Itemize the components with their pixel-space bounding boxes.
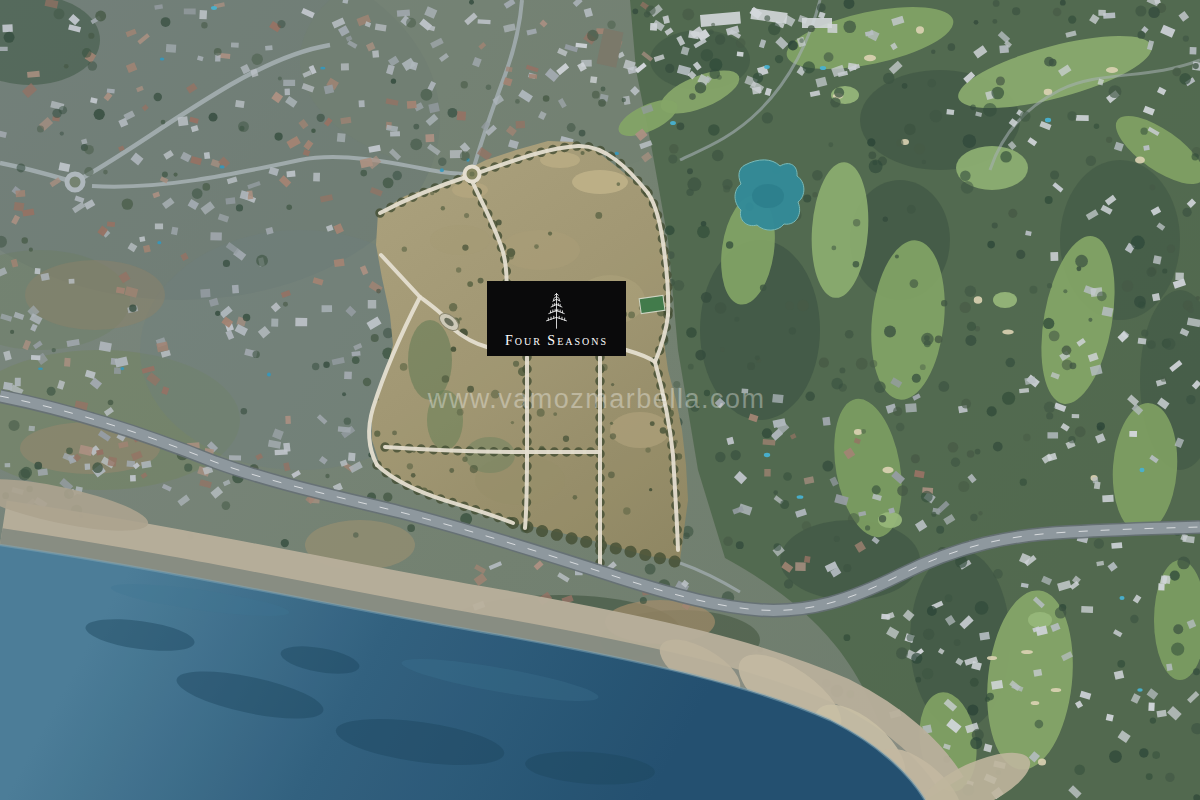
- four-seasons-brand-label: Four Seasons: [505, 334, 608, 348]
- watermark-url-text: www.vamozmarbella.com: [428, 384, 766, 415]
- screenshot-root: Four Seasons www.vamozmarbella.com: [0, 0, 1200, 800]
- four-seasons-logo-overlay: Four Seasons: [487, 281, 626, 356]
- four-seasons-tree-icon: [543, 291, 570, 331]
